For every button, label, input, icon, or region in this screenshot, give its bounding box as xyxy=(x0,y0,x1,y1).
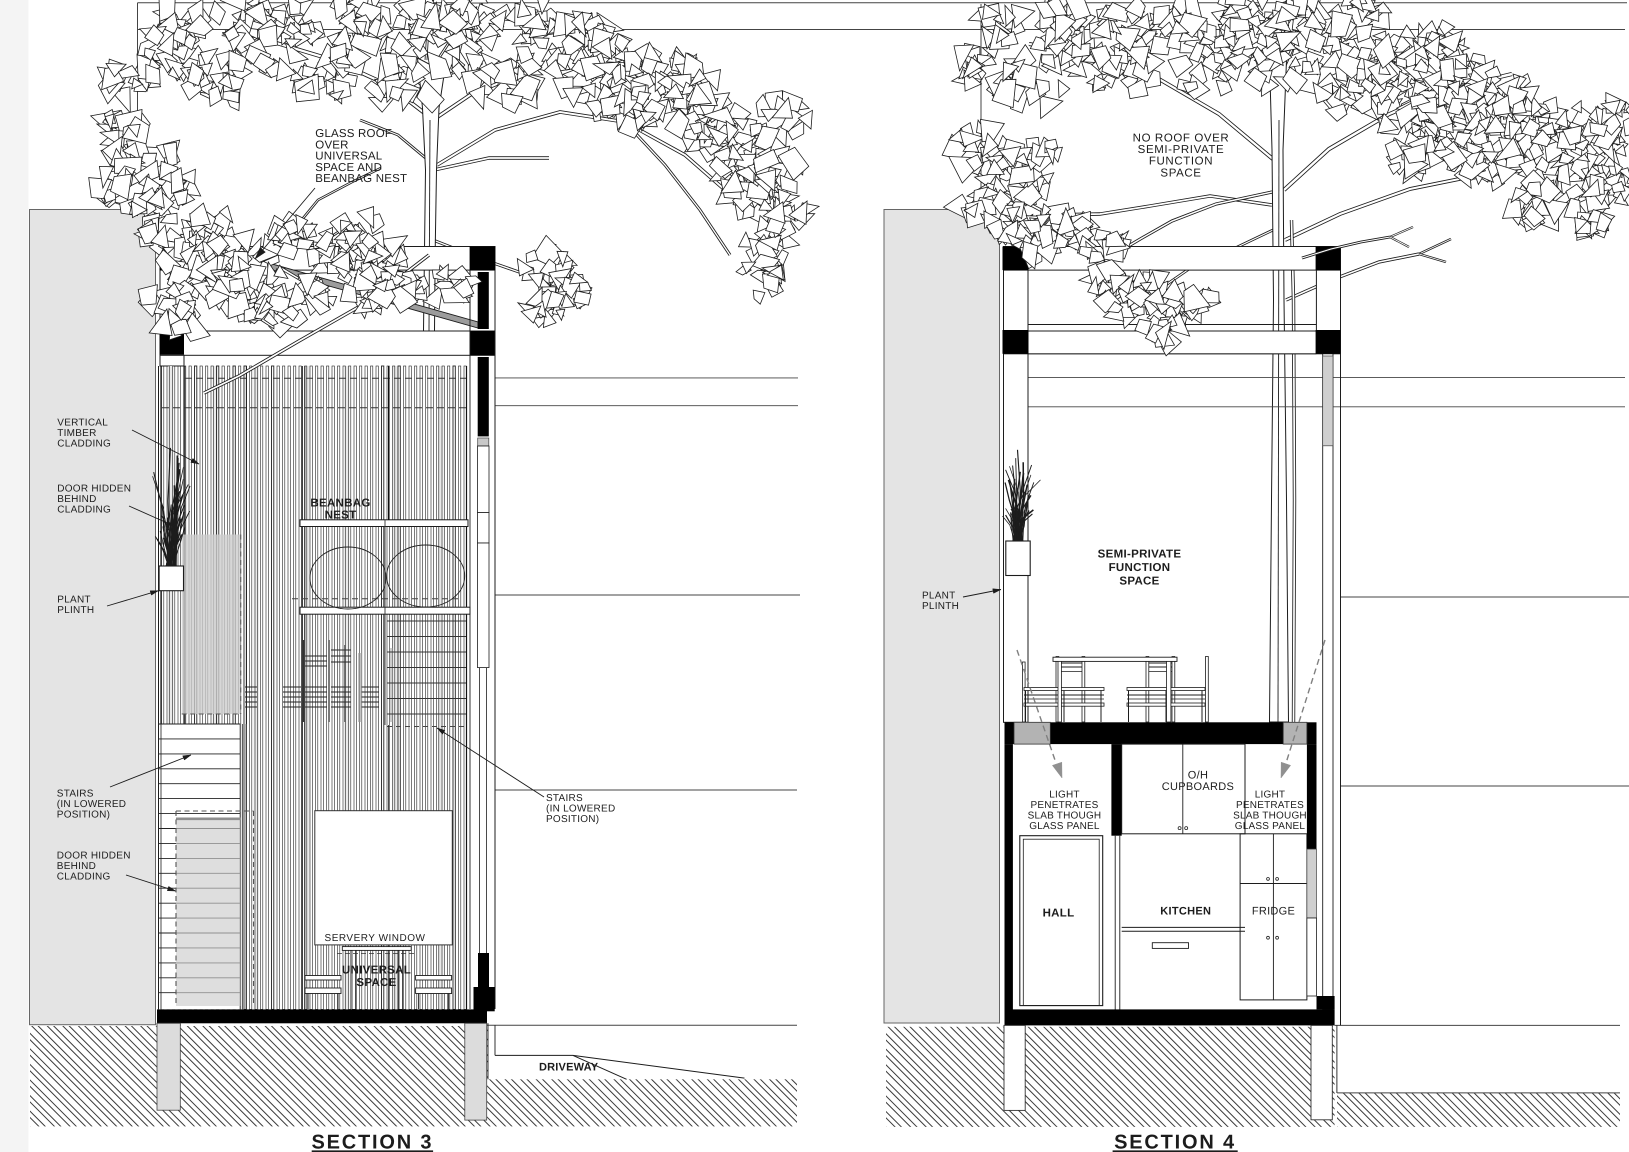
svg-text:OVER: OVER xyxy=(315,139,348,151)
svg-text:SPACE: SPACE xyxy=(1160,167,1201,179)
svg-text:FUNCTION: FUNCTION xyxy=(1109,562,1171,574)
svg-text:PLANT: PLANT xyxy=(922,591,955,602)
svg-text:UNIVERSAL: UNIVERSAL xyxy=(342,965,411,977)
svg-text:SERVERY WINDOW: SERVERY WINDOW xyxy=(325,933,426,944)
svg-text:BEANBAG NEST: BEANBAG NEST xyxy=(315,173,407,185)
svg-text:DOOR HIDDEN: DOOR HIDDEN xyxy=(57,851,131,862)
svg-text:NEST: NEST xyxy=(325,510,357,522)
svg-text:SEMI-PRIVATE: SEMI-PRIVATE xyxy=(1098,549,1182,561)
svg-text:PLINTH: PLINTH xyxy=(922,601,959,612)
svg-text:SPACE AND: SPACE AND xyxy=(315,162,382,174)
svg-text:POSITION): POSITION) xyxy=(57,809,110,820)
svg-text:GLASS PANEL: GLASS PANEL xyxy=(1235,821,1306,832)
svg-text:(IN LOWERED: (IN LOWERED xyxy=(546,804,615,815)
svg-text:LIGHT: LIGHT xyxy=(1255,790,1285,801)
svg-text:GLASS ROOF: GLASS ROOF xyxy=(315,128,392,140)
svg-text:NO ROOF OVER: NO ROOF OVER xyxy=(1133,133,1230,145)
svg-text:KITCHEN: KITCHEN xyxy=(1160,906,1211,918)
svg-text:PENETRATES: PENETRATES xyxy=(1031,800,1099,811)
svg-text:GLASS PANEL: GLASS PANEL xyxy=(1029,821,1100,832)
svg-text:CLADDING: CLADDING xyxy=(57,872,111,883)
svg-text:SLAB THOUGH: SLAB THOUGH xyxy=(1028,811,1102,822)
svg-text:CLADDING: CLADDING xyxy=(57,439,111,450)
svg-text:BEHIND: BEHIND xyxy=(57,494,96,505)
svg-text:SEMI-PRIVATE: SEMI-PRIVATE xyxy=(1138,144,1225,156)
svg-text:SECTION 4: SECTION 4 xyxy=(1114,1132,1236,1152)
svg-text:FUNCTION: FUNCTION xyxy=(1149,156,1213,168)
svg-text:O/H: O/H xyxy=(1188,770,1208,782)
svg-text:STAIRS: STAIRS xyxy=(546,793,583,804)
svg-text:SPACE: SPACE xyxy=(1119,576,1159,588)
svg-text:VERTICAL: VERTICAL xyxy=(57,418,108,429)
svg-text:TIMBER: TIMBER xyxy=(57,428,96,439)
svg-text:PENETRATES: PENETRATES xyxy=(1236,800,1304,811)
svg-text:DRIVEWAY: DRIVEWAY xyxy=(539,1062,599,1074)
svg-text:POSITION): POSITION) xyxy=(546,814,599,825)
svg-text:FRIDGE: FRIDGE xyxy=(1252,906,1295,918)
svg-text:HALL: HALL xyxy=(1043,908,1075,920)
svg-text:CUPBOARDS: CUPBOARDS xyxy=(1162,781,1234,793)
svg-text:CLADDING: CLADDING xyxy=(57,505,111,516)
svg-text:BEHIND: BEHIND xyxy=(57,861,96,872)
svg-text:STAIRS: STAIRS xyxy=(57,788,94,799)
svg-text:SECTION 3: SECTION 3 xyxy=(312,1132,434,1152)
svg-text:SPACE: SPACE xyxy=(356,977,396,989)
svg-text:PLANT: PLANT xyxy=(57,595,90,606)
svg-text:DOOR HIDDEN: DOOR HIDDEN xyxy=(57,484,131,495)
svg-text:SLAB THOUGH: SLAB THOUGH xyxy=(1233,811,1307,822)
svg-text:(IN LOWERED: (IN LOWERED xyxy=(57,799,126,810)
svg-text:LIGHT: LIGHT xyxy=(1049,790,1079,801)
svg-text:UNIVERSAL: UNIVERSAL xyxy=(315,151,382,163)
svg-text:PLINTH: PLINTH xyxy=(57,605,94,616)
svg-text:BEANBAG: BEANBAG xyxy=(310,498,370,510)
